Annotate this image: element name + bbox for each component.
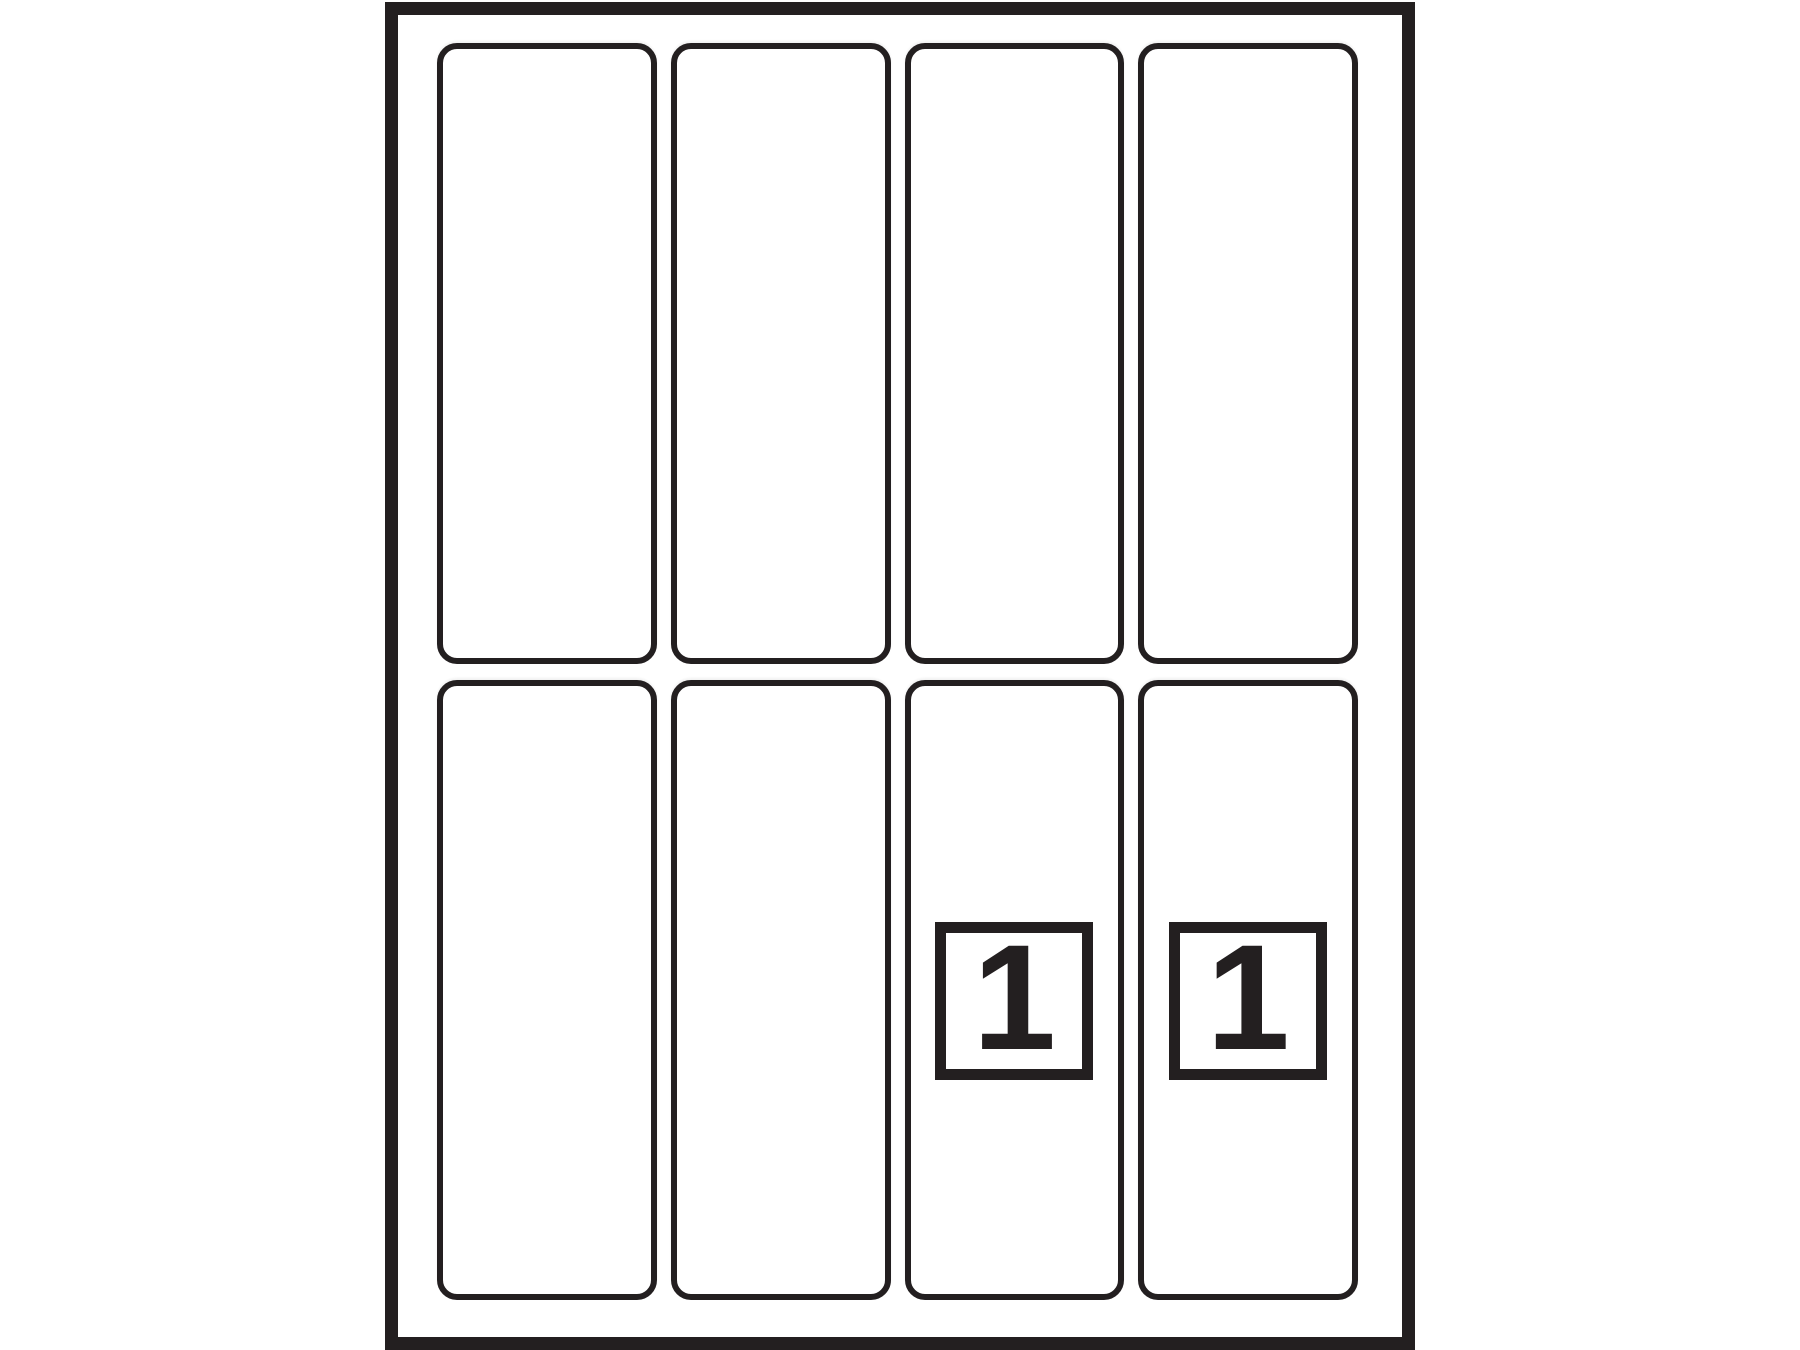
label-cell	[437, 680, 657, 1301]
label-cell: 1	[1138, 680, 1358, 1301]
label-cell	[671, 43, 891, 664]
diagram-canvas: 1 1	[0, 0, 1800, 1350]
label-cell	[1138, 43, 1358, 664]
label-cell	[905, 43, 1125, 664]
label-cell	[437, 43, 657, 664]
label-sheet: 1 1	[385, 2, 1415, 1350]
label-cell: 1	[905, 680, 1125, 1301]
label-grid: 1 1	[437, 43, 1358, 1300]
count-badge: 1	[935, 922, 1093, 1080]
count-badge: 1	[1169, 922, 1327, 1080]
label-cell	[671, 680, 891, 1301]
